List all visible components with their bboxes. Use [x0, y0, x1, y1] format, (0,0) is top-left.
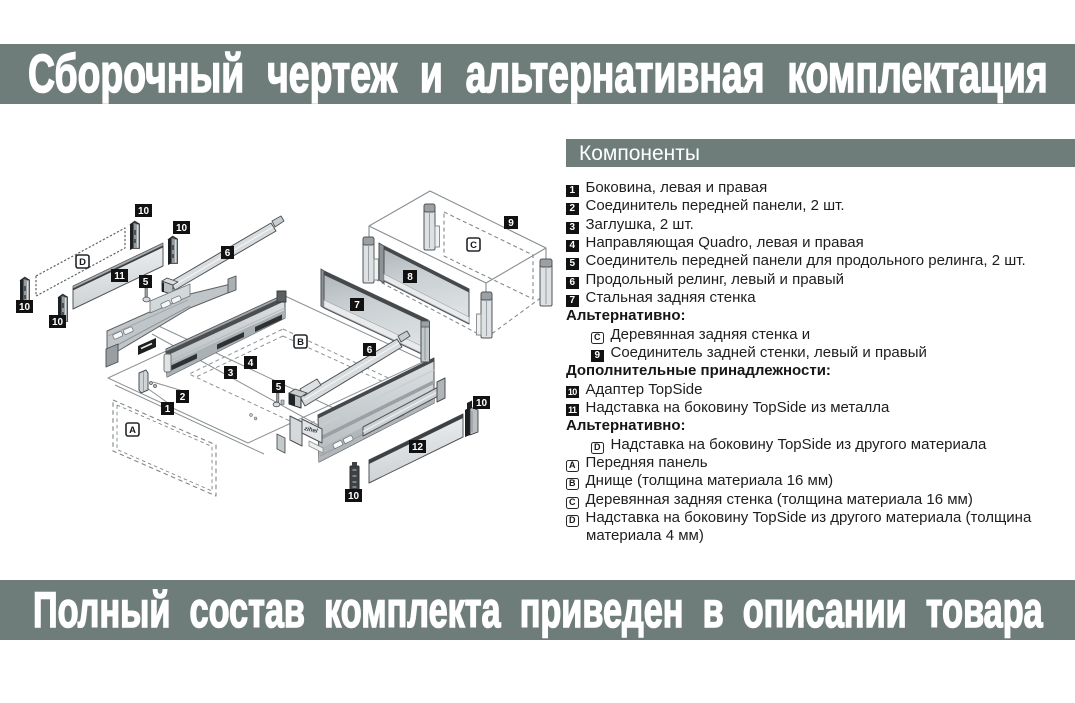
svg-text:5: 5 — [143, 277, 149, 288]
svg-text:10: 10 — [476, 398, 488, 409]
svg-text:3: 3 — [228, 368, 234, 379]
svg-text:11: 11 — [114, 271, 125, 282]
svg-text:6: 6 — [367, 345, 373, 356]
svg-text:A: A — [129, 425, 136, 436]
svg-text:4: 4 — [248, 358, 254, 369]
svg-text:6: 6 — [225, 248, 231, 259]
svg-text:10: 10 — [348, 491, 360, 502]
svg-text:10: 10 — [52, 317, 64, 328]
svg-text:B: B — [297, 337, 304, 348]
svg-text:10: 10 — [176, 223, 188, 234]
svg-text:1: 1 — [165, 404, 171, 415]
svg-text:D: D — [79, 257, 86, 268]
svg-text:12: 12 — [412, 442, 424, 453]
svg-text:10: 10 — [138, 206, 150, 217]
svg-text:8: 8 — [407, 272, 413, 283]
svg-text:7: 7 — [354, 300, 360, 311]
svg-text:2: 2 — [180, 392, 186, 403]
svg-text:C: C — [470, 240, 477, 251]
svg-text:5: 5 — [276, 382, 282, 393]
svg-text:9: 9 — [508, 218, 514, 229]
svg-text:10: 10 — [19, 302, 31, 313]
